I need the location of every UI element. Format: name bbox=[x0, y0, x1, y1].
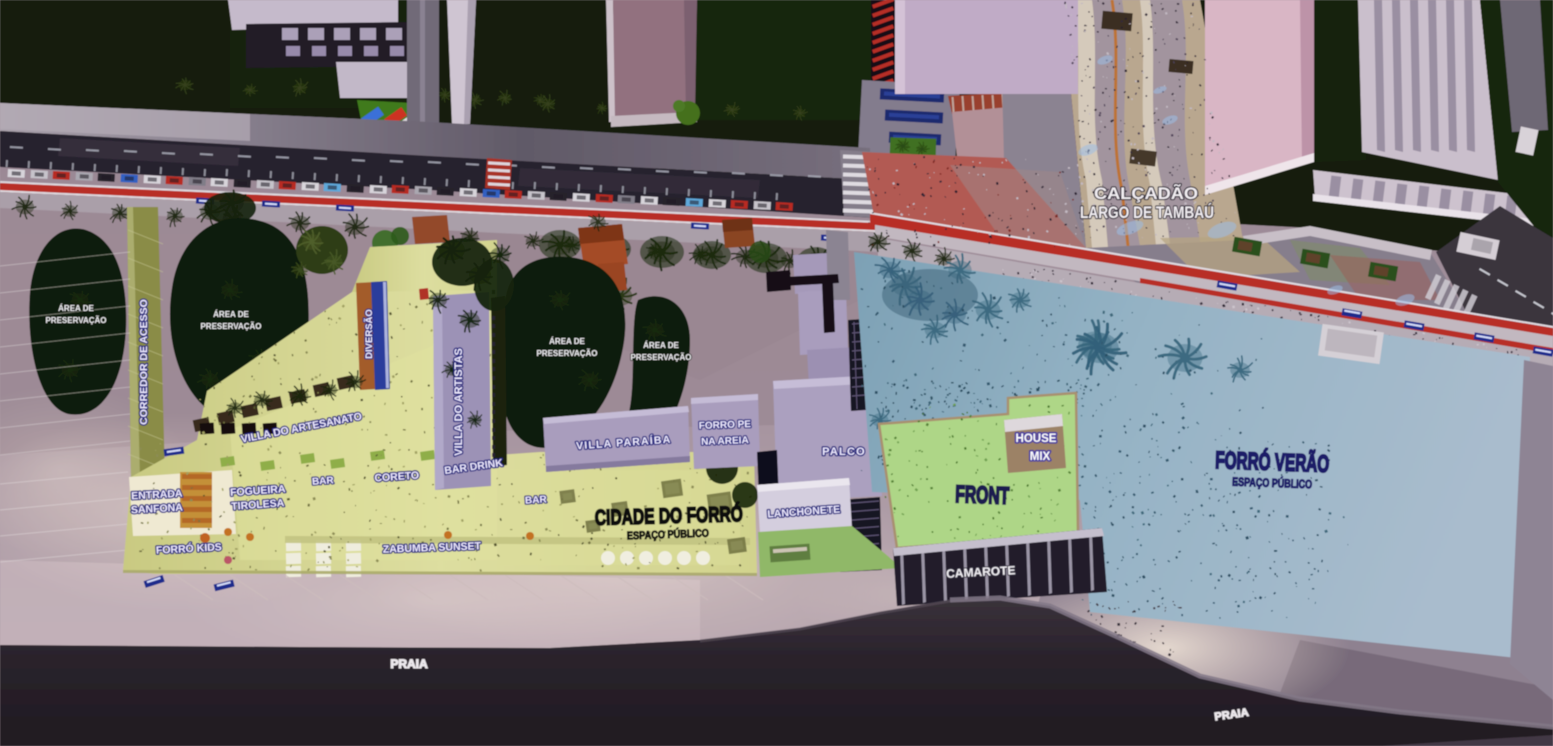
svg-text:LARGO DE TAMBAÚ: LARGO DE TAMBAÚ bbox=[1080, 203, 1214, 222]
svg-text:FRONT: FRONT bbox=[955, 481, 1010, 510]
svg-text:DIVERSÃO: DIVERSÃO bbox=[364, 309, 375, 359]
svg-text:ÁREA DE: ÁREA DE bbox=[58, 304, 94, 313]
svg-text:MIX: MIX bbox=[1030, 451, 1051, 463]
svg-text:PRAIA: PRAIA bbox=[390, 657, 428, 671]
svg-text:BAR: BAR bbox=[312, 475, 335, 488]
svg-text:PALCO: PALCO bbox=[822, 446, 866, 458]
svg-text:FORRO PE: FORRO PE bbox=[699, 419, 752, 432]
svg-text:ÁREA DE: ÁREA DE bbox=[213, 310, 249, 319]
svg-text:ÁREA DE: ÁREA DE bbox=[549, 337, 585, 346]
svg-text:VILLA DO ARTISTAS: VILLA DO ARTISTAS bbox=[453, 348, 465, 456]
svg-text:NA AREIA: NA AREIA bbox=[701, 435, 749, 448]
svg-text:PRESERVAÇÃO: PRESERVAÇÃO bbox=[200, 322, 261, 331]
svg-text:HOUSE: HOUSE bbox=[1016, 433, 1057, 445]
svg-text:ÁREA DE: ÁREA DE bbox=[643, 341, 679, 350]
svg-text:PRESERVAÇÃO: PRESERVAÇÃO bbox=[536, 349, 597, 358]
svg-text:CALÇADÃO: CALÇADÃO bbox=[1094, 183, 1198, 203]
svg-text:BAR: BAR bbox=[525, 494, 548, 506]
svg-text:ESPAÇO PÚBLICO: ESPAÇO PÚBLICO bbox=[1232, 474, 1312, 492]
svg-text:CIDADE DO FORRÓ: CIDADE DO FORRÓ bbox=[595, 501, 744, 530]
svg-text:PRESERVAÇÃO: PRESERVAÇÃO bbox=[45, 316, 106, 325]
svg-text:CORREDOR DE ACESSO: CORREDOR DE ACESSO bbox=[138, 299, 150, 425]
svg-text:FORRÓ VERÃO: FORRÓ VERÃO bbox=[1215, 446, 1330, 478]
svg-text:PRESERVAÇÃO: PRESERVAÇÃO bbox=[630, 353, 691, 362]
